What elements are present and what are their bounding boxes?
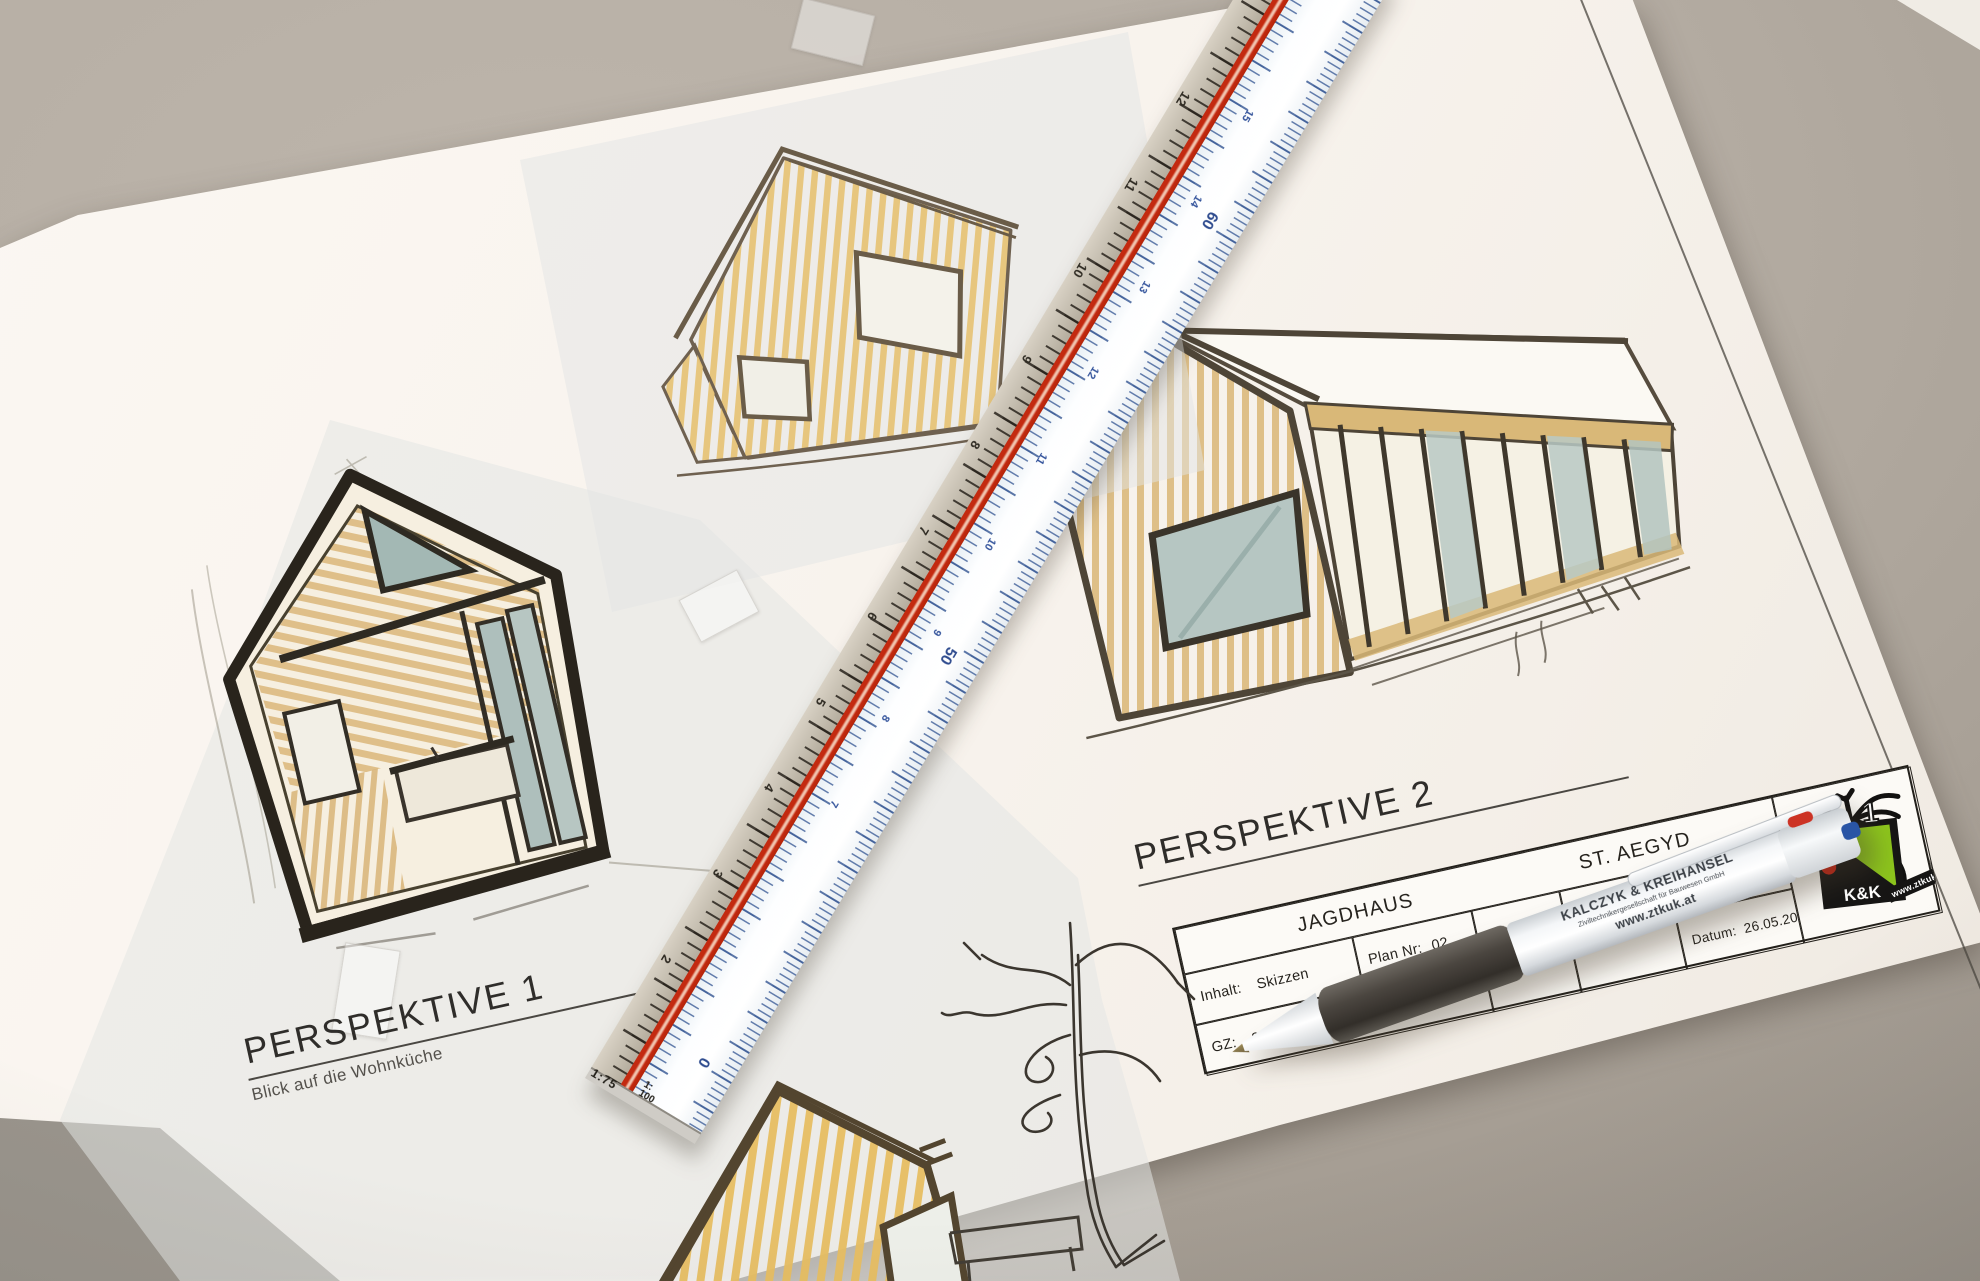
tree-sketch bbox=[920, 895, 1250, 1281]
datum-value: 26.05.2020 bbox=[1742, 906, 1804, 936]
inhalt-value: Skizzen bbox=[1255, 966, 1310, 993]
datum-label: Datum: bbox=[1690, 923, 1737, 947]
logo-one: 1 bbox=[1860, 796, 1880, 831]
photo-of-architectural-sketches: PERSPEKTIVE 2 JAGDHAUS ST. AEGYD Inhalt:… bbox=[0, 0, 1980, 1281]
